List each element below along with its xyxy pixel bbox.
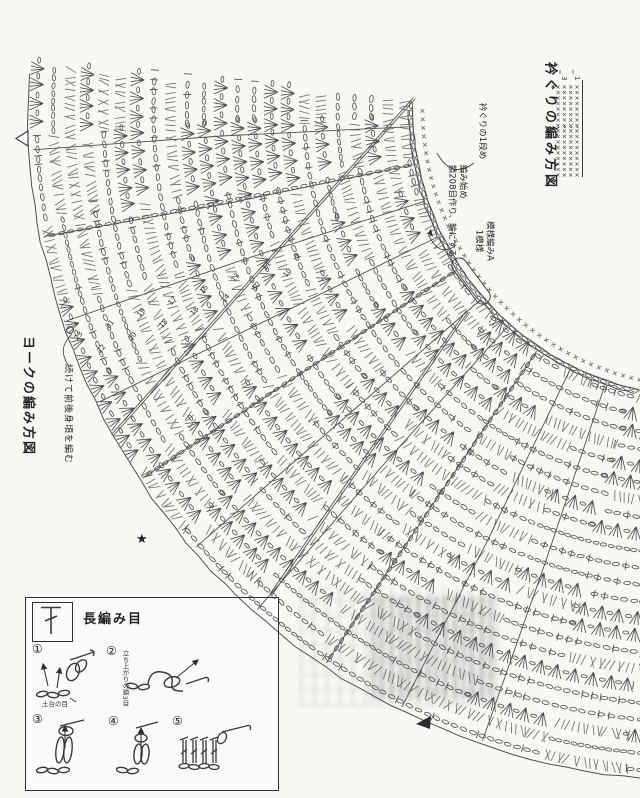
neckline-grid-stitch: × xyxy=(562,172,567,179)
neckline-grid-stitch: × xyxy=(562,156,567,163)
neckline-grid-stitch: × xyxy=(574,90,579,97)
neckline-grid-stitch: × xyxy=(562,106,567,113)
open-triangle-marker xyxy=(16,131,28,146)
row-number: 23 xyxy=(73,330,85,342)
neckline-grid-stitch: × xyxy=(568,139,573,146)
start-loop xyxy=(67,327,74,334)
neckline-grid-stitch: × xyxy=(562,117,567,124)
neckline-grid-stitch: × xyxy=(568,134,573,141)
neckline-grid-stitch: × xyxy=(562,161,567,168)
leader-continue xyxy=(63,334,72,365)
neckline-grid-stitch: × xyxy=(574,95,579,102)
neckline-grid-stitch: × xyxy=(568,150,573,157)
neckline-grid-stitch: × xyxy=(568,84,573,91)
row-number: 15 xyxy=(198,283,210,295)
neckline-grid-stitch: × xyxy=(568,95,573,102)
neckline-grid-stitch: × xyxy=(574,167,579,174)
neckline-grid-stitch: × xyxy=(574,128,579,135)
step-4-number: ④ xyxy=(108,714,119,728)
row-number: 13 xyxy=(230,272,242,284)
neckline-grid-stitch: × xyxy=(568,161,573,168)
start-annotation-line2: 鎖208目作り、輪にする xyxy=(447,165,458,257)
step-5-illustration xyxy=(179,726,251,770)
step-3-illustration xyxy=(36,720,84,774)
pattern-a-line2: 1模様 xyxy=(474,221,485,261)
neckline-grid-stitch: × xyxy=(574,172,579,179)
neckline-grid-stitch: × xyxy=(562,145,567,152)
neckline-grid-stitch: × xyxy=(562,90,567,97)
step-2-illustration xyxy=(126,660,208,691)
neckline-grid-stitch: × xyxy=(568,167,573,174)
neckline-grid-stitch: × xyxy=(562,167,567,174)
step-4-illustration xyxy=(116,722,158,774)
filled-triangle-marker xyxy=(416,716,431,729)
yoke-diagram-title: ヨークの編み方図 xyxy=(21,336,40,456)
row-number: 14 xyxy=(220,292,232,304)
star-marker: ★ xyxy=(136,532,148,547)
row-number: 19 xyxy=(135,307,147,319)
neckline-grid-stitch: × xyxy=(562,150,567,157)
neckline-grid-stitch: × xyxy=(562,101,567,108)
row-number: 16 xyxy=(189,305,201,317)
neckline-grid-stitch: × xyxy=(562,84,567,91)
neckline-grid-stitch: × xyxy=(574,145,579,152)
neckline-grid-stitch: × xyxy=(574,161,579,168)
blurred-region xyxy=(300,586,502,706)
row-number: 12 xyxy=(251,280,263,292)
neckline-row1-annotation: 衿ぐりの1段め xyxy=(477,103,489,159)
neckline-grid-stitch: × xyxy=(574,134,579,141)
neckline-grid-stitch: × xyxy=(568,156,573,163)
neckline-grid-stitch: × xyxy=(574,156,579,163)
step-1-number: ① xyxy=(32,642,43,656)
pattern-a-bracket xyxy=(449,255,493,307)
step-2-number: ② xyxy=(106,644,117,658)
blurred-streaks xyxy=(372,596,494,700)
row-number: 11 xyxy=(261,260,273,272)
neckline-grid-stitch: × xyxy=(574,139,579,146)
neckline-grid-stitch: × xyxy=(568,172,573,179)
row-number: 10 xyxy=(282,267,294,279)
neckline-grid-stitch: × xyxy=(562,139,567,146)
start-annotation: 編み始め 鎖208目作り、輪にする xyxy=(447,165,468,257)
leader-start-arrow xyxy=(428,229,433,237)
legend-step-illustrations xyxy=(26,598,276,788)
start-annotation-line1: 編み始め xyxy=(457,165,468,257)
grid-row-label: 1 xyxy=(573,76,581,80)
row-number: 20 xyxy=(127,330,139,342)
neckline-grid-stitch: × xyxy=(574,101,579,108)
neckline-grid-stitch: × xyxy=(568,90,573,97)
pattern-a-line1: 模様編みA xyxy=(484,221,495,261)
neckline-diagram-title: 衿ぐりの編み方図 xyxy=(543,62,562,190)
neckline-grid-stitch: × xyxy=(574,123,579,130)
row-number: 17 xyxy=(167,295,179,307)
neckline-grid-stitch: × xyxy=(568,145,573,152)
neckline-grid-stitch: × xyxy=(562,112,567,119)
neckline-grid-stitch: × xyxy=(568,106,573,113)
row-number: 9 xyxy=(292,252,301,261)
neckline-grid-stitch: × xyxy=(574,150,579,157)
neckline-grid-stitch: × xyxy=(568,123,573,130)
row-number: 18 xyxy=(158,318,170,330)
neckline-grid-stitch: × xyxy=(574,112,579,119)
continue-body-annotation: 続けて前後身頃を編む xyxy=(63,364,76,464)
row-number: 22 xyxy=(96,343,108,355)
neckline-grid-stitch: × xyxy=(568,112,573,119)
row-number: 21 xyxy=(104,318,116,330)
step-3-number: ③ xyxy=(32,712,43,726)
neckline-grid-stitch: × xyxy=(562,123,567,130)
neckline-grid-stitch: × xyxy=(562,134,567,141)
neckline-grid-stitch: × xyxy=(568,128,573,135)
neckline-grid-stitch: × xyxy=(574,106,579,113)
scanned-crochet-pattern-page: 長編み目 ① ② ③ ④ ⑤ 立ち上がりの鎖3目 土台の目 xyxy=(0,0,640,798)
neckline-grid-stitch: × xyxy=(562,95,567,102)
neckline-grid-stitch: × xyxy=(574,117,579,124)
legend-box: 長編み目 ① ② ③ ④ ⑤ 立ち上がりの鎖3目 土台の目 xyxy=(25,597,279,791)
pattern-a-annotation: 模様編みA 1模様 xyxy=(474,221,495,261)
step-1-illustration xyxy=(36,650,94,702)
step-5-number: ⑤ xyxy=(172,714,183,728)
neckline-grid-stitch: × xyxy=(568,101,573,108)
neckline-grid-stitch: × xyxy=(574,84,579,91)
neckline-grid-stitch: × xyxy=(562,128,567,135)
neckline-grid-stitch: × xyxy=(568,117,573,124)
